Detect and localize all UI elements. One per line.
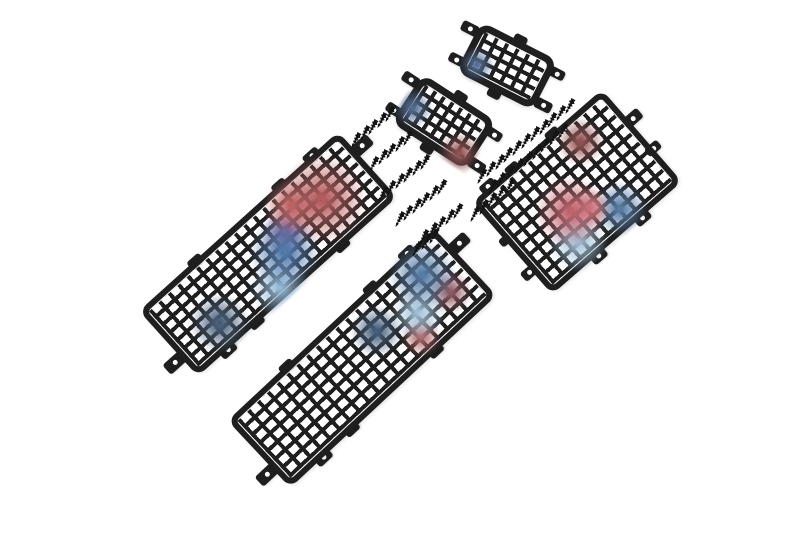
screw-hole bbox=[263, 471, 270, 478]
screw-hole bbox=[455, 240, 462, 247]
mesh-grid bbox=[482, 99, 672, 284]
screw bbox=[467, 205, 481, 223]
mesh-panel-right-large bbox=[472, 90, 682, 295]
screw-hole bbox=[554, 70, 561, 77]
screw-hole bbox=[171, 359, 178, 366]
screw-hole bbox=[491, 131, 498, 138]
screw-hole bbox=[453, 56, 460, 63]
mesh-panel-small-top bbox=[456, 22, 558, 111]
product-photo bbox=[0, 0, 800, 535]
screw-hole bbox=[408, 76, 415, 83]
screw-hole bbox=[467, 25, 474, 32]
screw-hole bbox=[540, 101, 547, 108]
screw-hole bbox=[358, 142, 365, 149]
mesh-panel-small-mid bbox=[391, 74, 496, 171]
screw-hole bbox=[474, 161, 481, 168]
